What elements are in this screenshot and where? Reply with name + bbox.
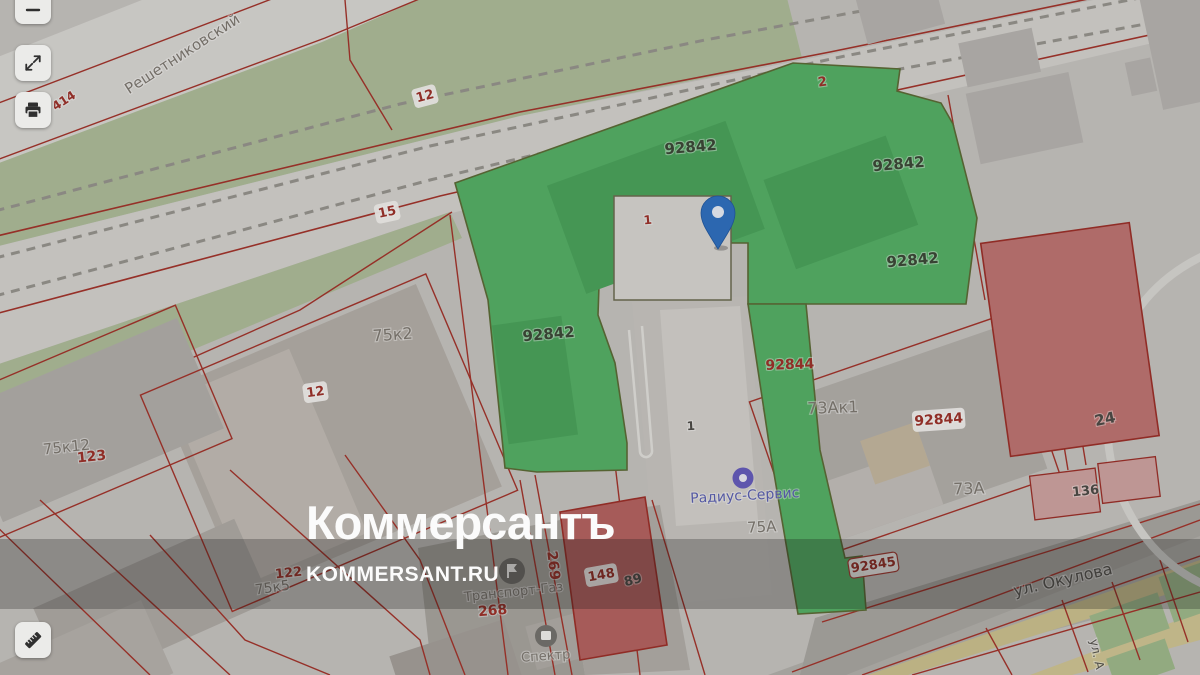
minus-icon xyxy=(23,0,43,16)
expand-button[interactable] xyxy=(15,45,51,81)
map-canvas[interactable]: Решетниковский41412152928429284292842928… xyxy=(0,0,1200,675)
printer-icon xyxy=(23,100,43,120)
measure-button[interactable] xyxy=(15,622,51,658)
print-button[interactable] xyxy=(15,92,51,128)
ruler-icon xyxy=(22,629,44,651)
expand-arrows-icon xyxy=(24,54,42,72)
zoom-out-button[interactable] xyxy=(15,0,51,24)
map-screenshot: Решетниковский41412152928429284292842928… xyxy=(0,0,1200,675)
watermark-band xyxy=(0,539,1200,609)
